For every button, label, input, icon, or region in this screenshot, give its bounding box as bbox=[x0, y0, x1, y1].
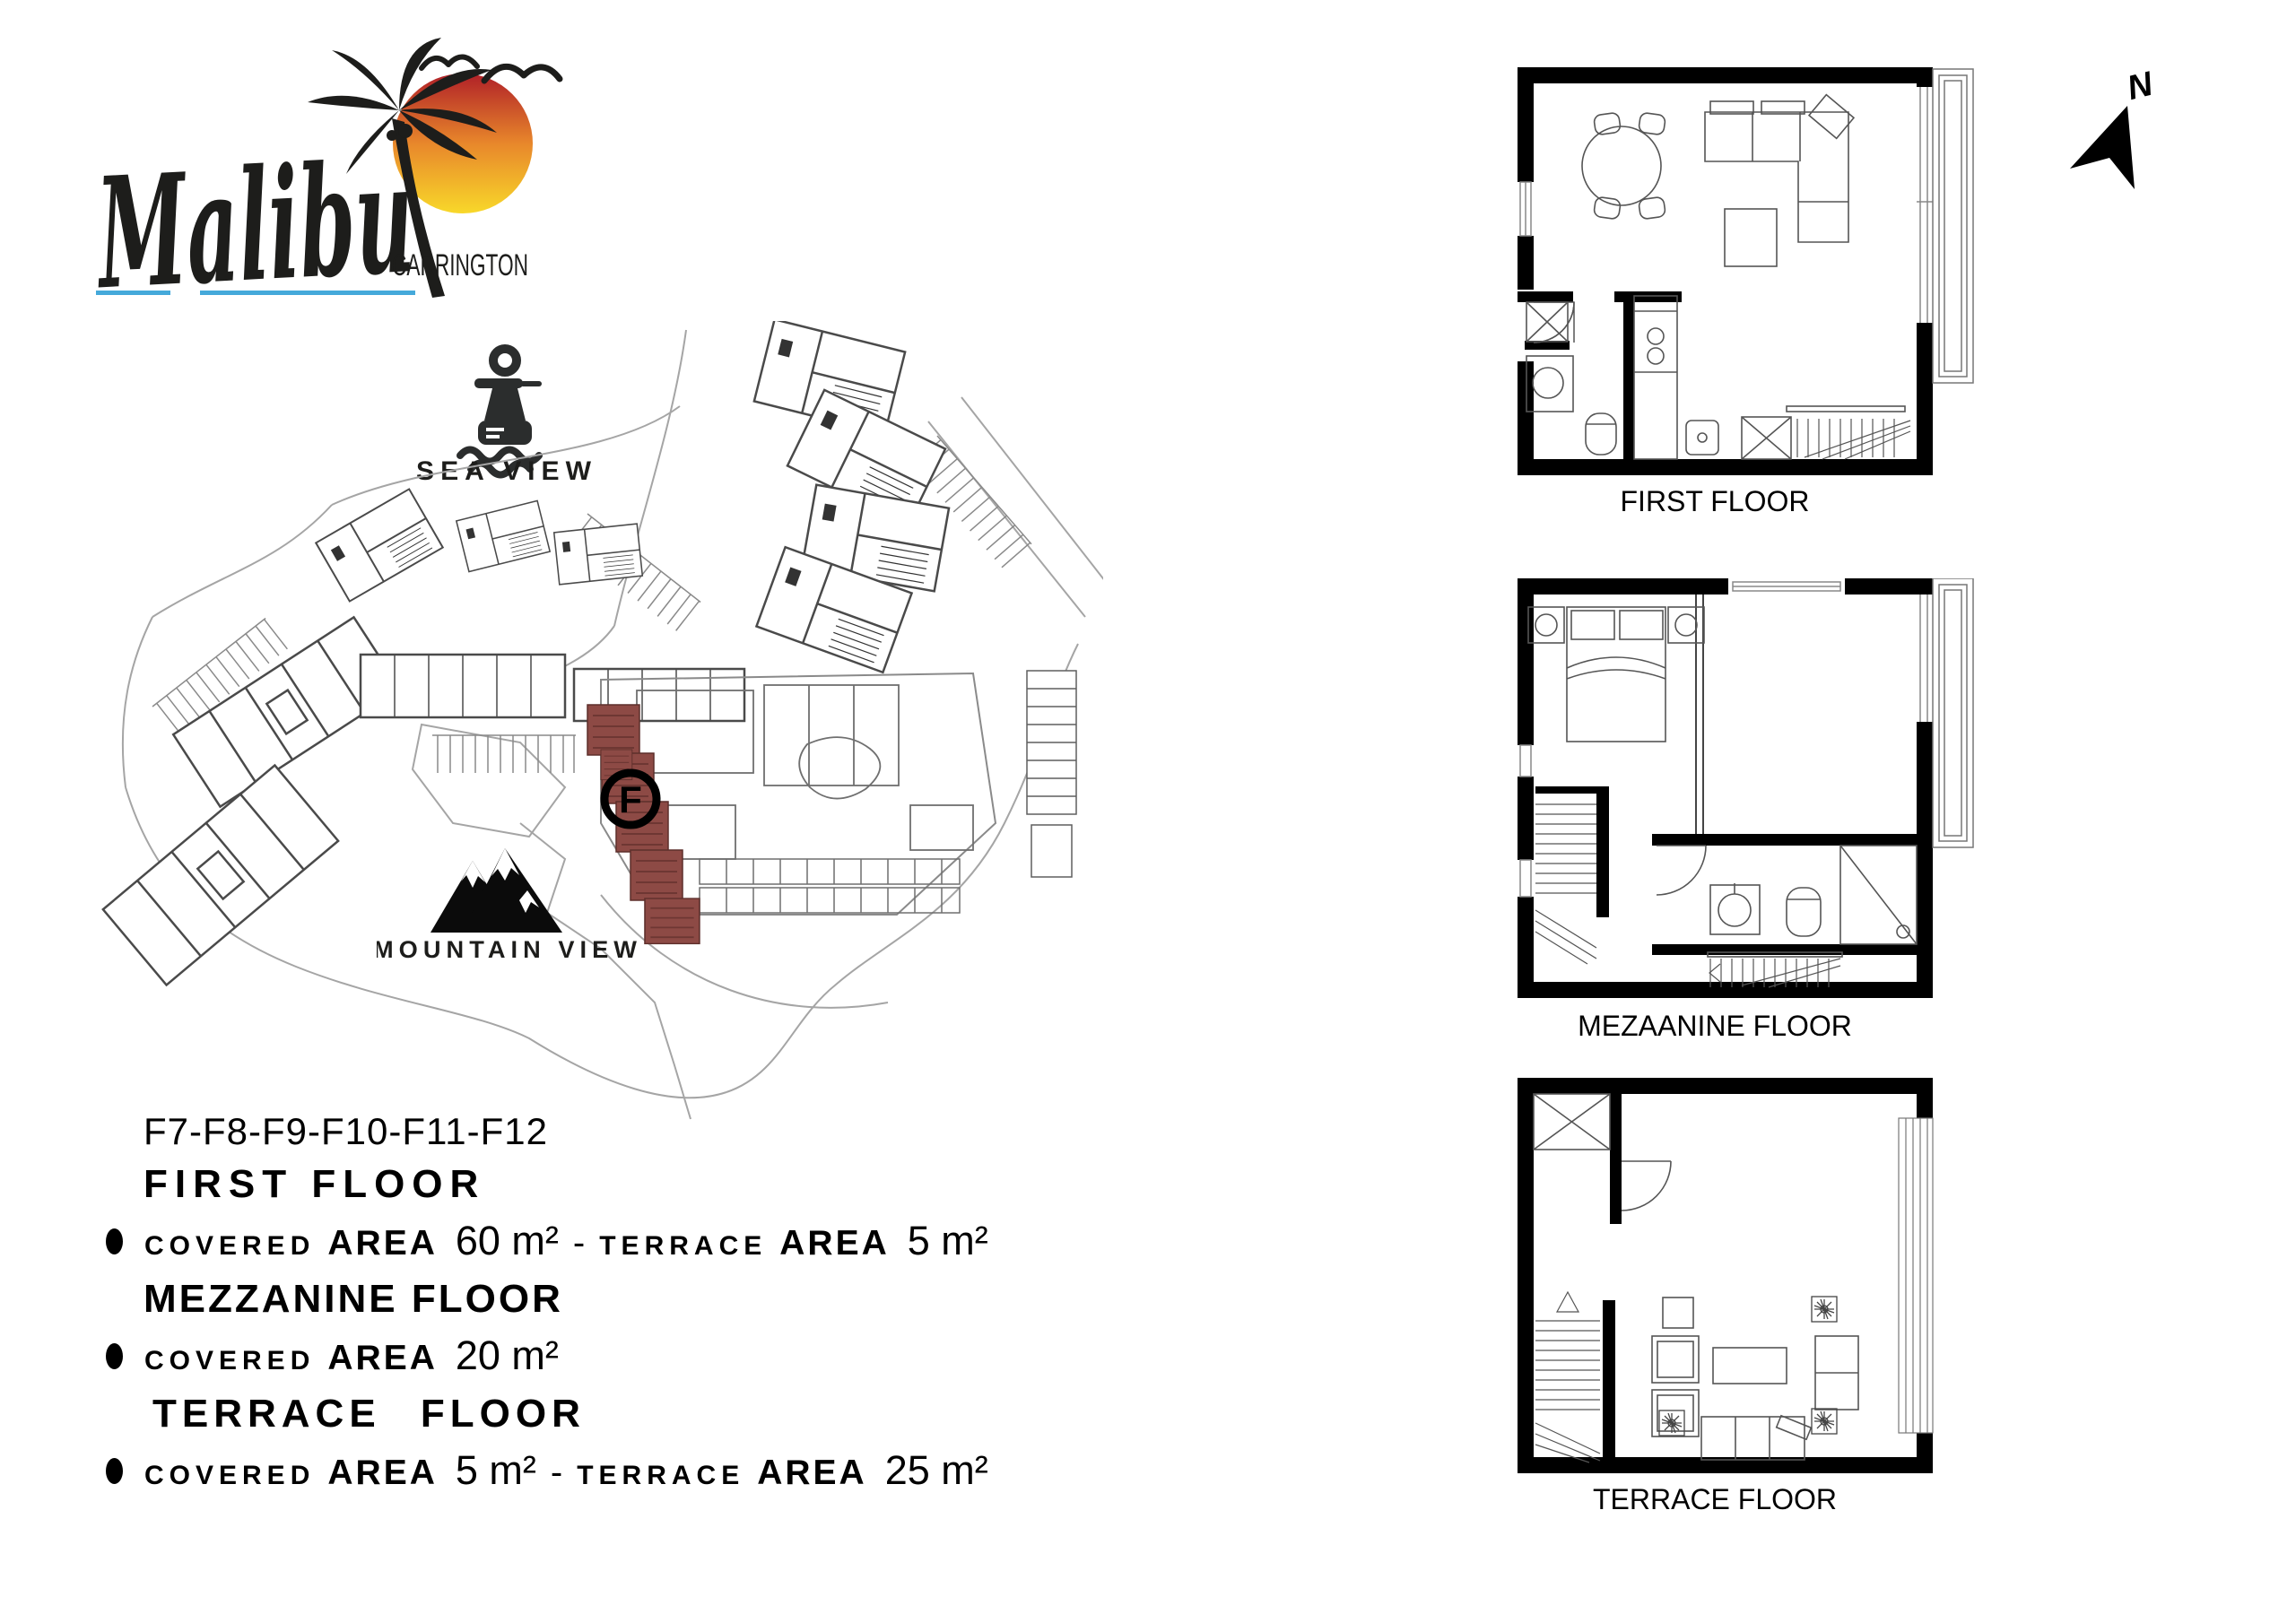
brand-underline bbox=[96, 291, 415, 295]
mountain-view-label: MOUNTAIN VIEW bbox=[377, 936, 642, 963]
site-left-wing bbox=[103, 617, 401, 985]
walls bbox=[1518, 578, 1933, 998]
spec-label: COVERED bbox=[144, 1461, 315, 1491]
walls bbox=[1518, 67, 1933, 475]
section-title-terrace-floor: TERRACE FLOOR bbox=[152, 1392, 586, 1436]
spec-label: AREA bbox=[327, 1454, 438, 1493]
spec-row-terrace-floor: COVERED AREA 5 m² - TERRACE AREA 25 m² bbox=[106, 1447, 1003, 1494]
section-title-first-floor: FIRST FLOOR bbox=[143, 1162, 485, 1207]
spec-label: AREA bbox=[779, 1224, 890, 1263]
spec-label: COVERED bbox=[144, 1346, 315, 1376]
spec-row-mezzanine-floor: COVERED AREA 20 m² bbox=[106, 1332, 573, 1379]
spec-label: TERRACE bbox=[577, 1461, 744, 1491]
north-label: N bbox=[2124, 65, 2158, 108]
section-title-mezzanine-floor: MEZZANINE FLOOR bbox=[143, 1277, 563, 1322]
mountain-view-badge: MOUNTAIN VIEW bbox=[377, 841, 646, 967]
furniture bbox=[1528, 607, 1917, 987]
site-central-buildings bbox=[361, 655, 744, 721]
spec-separator: - bbox=[573, 1223, 585, 1263]
bullet-icon bbox=[106, 1228, 123, 1254]
walls bbox=[1518, 1078, 1933, 1473]
stairs bbox=[1535, 1292, 1600, 1462]
first-floor-plan: FIRST FLOOR bbox=[1518, 67, 1975, 518]
brand-name: Malibu bbox=[91, 128, 418, 312]
spec-label: TERRACE bbox=[599, 1231, 767, 1262]
terrace-floor-plan: TERRACE FLOOR bbox=[1518, 1072, 1975, 1516]
mezzanine-floor-plan-label: MEZAANINE FLOOR bbox=[1518, 1010, 1912, 1043]
brochure-page: Malibu CARRINGTON SEA VIEW bbox=[0, 0, 2296, 1623]
spec-value: 5 m² bbox=[908, 1218, 988, 1264]
f-marker-label: F bbox=[619, 778, 642, 820]
spec-row-first-floor: COVERED AREA 60 m² - TERRACE AREA 5 m² bbox=[106, 1218, 1003, 1264]
deck bbox=[1899, 1118, 1933, 1433]
first-floor-plan-label: FIRST FLOOR bbox=[1518, 485, 1912, 518]
site-villas-top bbox=[754, 321, 949, 673]
bullet-icon bbox=[106, 1458, 123, 1484]
site-plan-drawing: F bbox=[99, 321, 1103, 1128]
mezzanine-floor-plan: MEZAANINE FLOOR bbox=[1518, 578, 1975, 1043]
spec-separator: - bbox=[551, 1453, 562, 1493]
spec-value: 25 m² bbox=[885, 1447, 988, 1494]
balcony bbox=[1933, 578, 1973, 847]
spec-value: 20 m² bbox=[456, 1332, 559, 1379]
spec-value: 5 m² bbox=[456, 1447, 536, 1494]
mountains-icon bbox=[430, 848, 562, 933]
brand-logo: Malibu CARRINGTON bbox=[90, 25, 592, 312]
terrace-floor-plan-drawing bbox=[1518, 1072, 1975, 1473]
terrace-floor-plan-label: TERRACE FLOOR bbox=[1518, 1483, 1912, 1516]
brand-subtitle: CARRINGTON bbox=[392, 248, 528, 282]
furniture bbox=[1526, 95, 1910, 459]
site-villas-middle bbox=[316, 489, 642, 601]
north-arrow: N bbox=[2058, 63, 2184, 206]
spec-value: 60 m² bbox=[456, 1218, 559, 1264]
north-arrow-icon bbox=[2070, 106, 2135, 189]
spec-label: AREA bbox=[327, 1224, 438, 1263]
first-floor-plan-drawing bbox=[1518, 67, 1975, 475]
spec-label: COVERED bbox=[144, 1231, 315, 1262]
balcony bbox=[1933, 69, 1973, 383]
bullet-icon bbox=[106, 1343, 123, 1369]
spec-label: AREA bbox=[327, 1339, 438, 1378]
mezzanine-floor-plan-drawing bbox=[1518, 578, 1975, 1000]
unit-codes: F7-F8-F9-F10-F11-F12 bbox=[143, 1110, 548, 1153]
spec-label: AREA bbox=[757, 1454, 867, 1493]
